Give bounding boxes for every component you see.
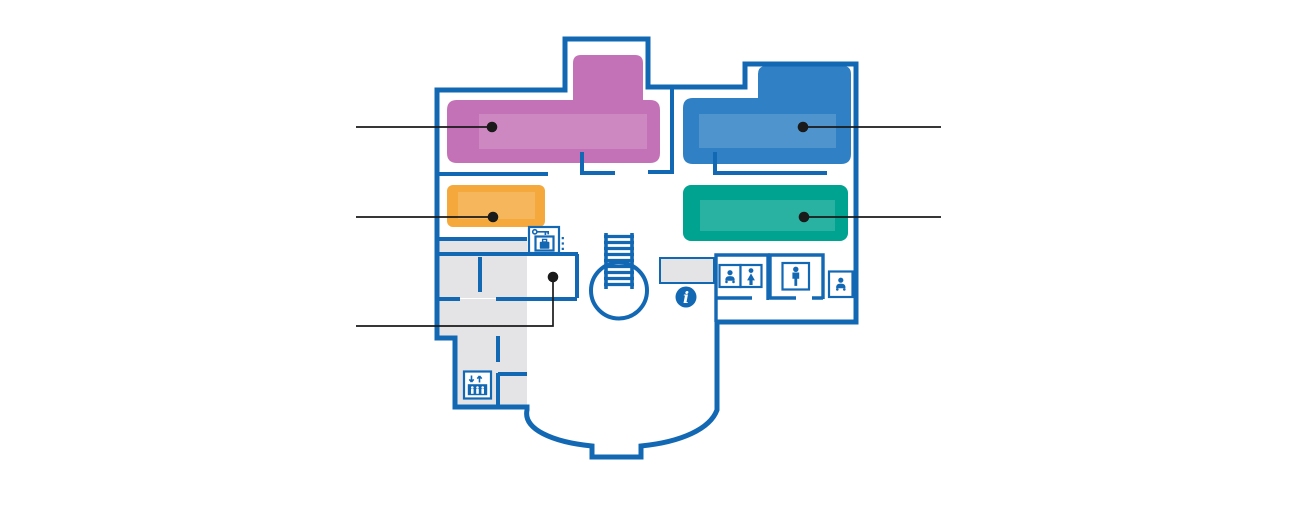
elevator-icon: [464, 372, 491, 399]
info-glyph: i: [683, 288, 689, 307]
callout-dot[interactable]: [488, 212, 499, 223]
floor-plan-canvas: i: [0, 0, 1297, 531]
coat-check-icon: [529, 227, 563, 254]
baby-changing-sign: [720, 265, 741, 287]
callout-dot[interactable]: [798, 122, 809, 133]
room-blue-highlight: [699, 114, 836, 148]
info-icon: i: [676, 287, 697, 308]
floor-plan: i: [0, 0, 1297, 531]
callout-dot[interactable]: [548, 272, 559, 283]
reception-desk: [660, 258, 714, 283]
room-pink-highlight: [479, 114, 647, 149]
callout-dot[interactable]: [487, 122, 498, 133]
room-teal-highlight: [700, 200, 835, 231]
callout-dot[interactable]: [799, 212, 810, 223]
staircase-icon: [591, 233, 647, 319]
